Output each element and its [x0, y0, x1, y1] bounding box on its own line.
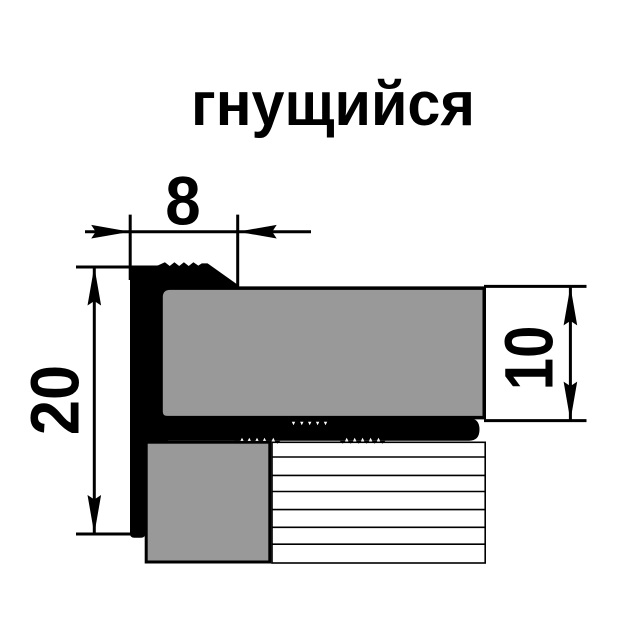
- svg-text:20: 20: [17, 365, 94, 435]
- svg-text:10: 10: [490, 326, 567, 391]
- svg-text:гнущийся: гнущийся: [191, 70, 475, 139]
- svg-text:8: 8: [165, 163, 200, 240]
